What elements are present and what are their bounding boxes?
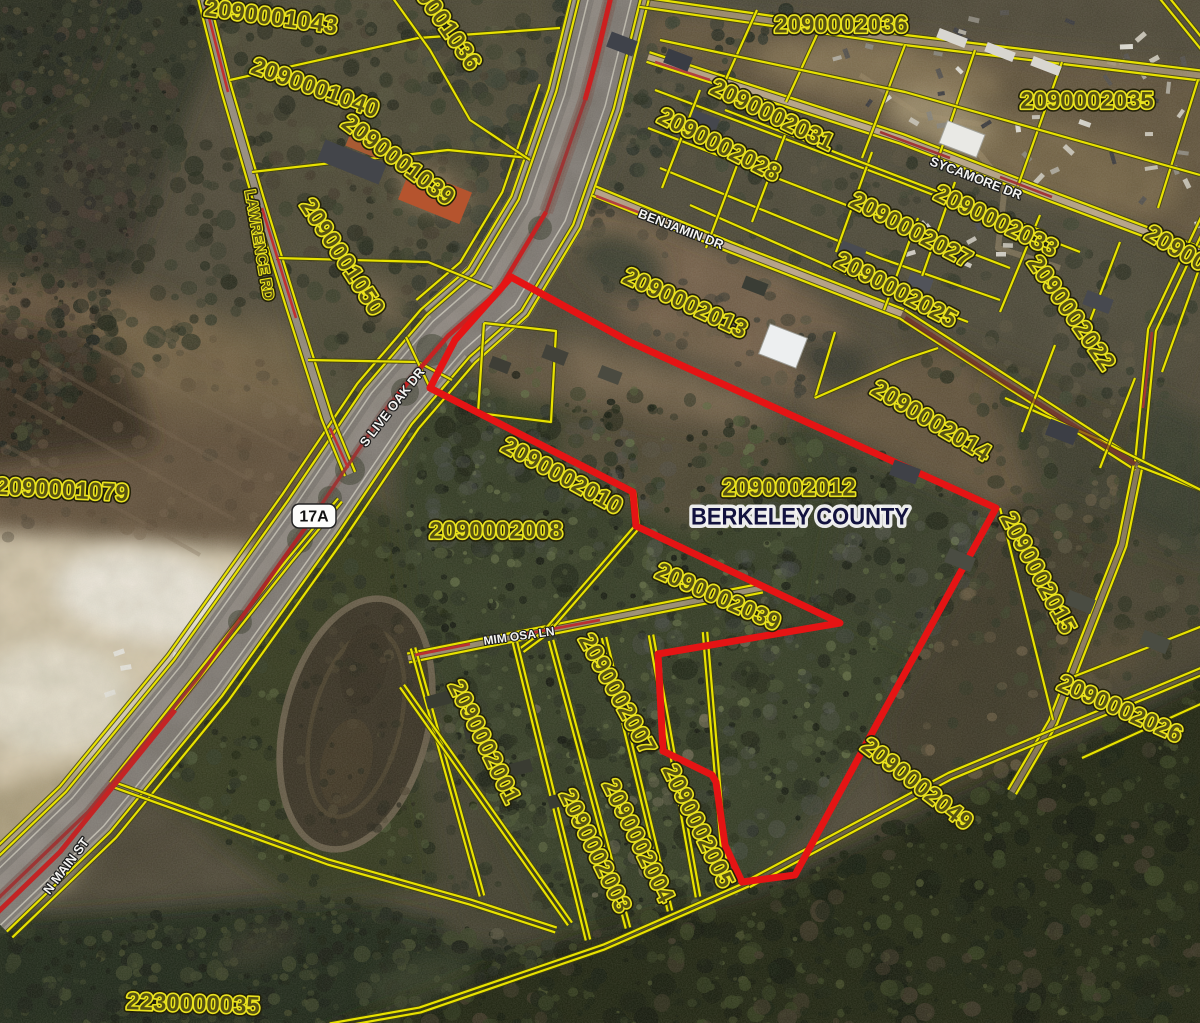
svg-text:2090002035: 2090002035 [1020,88,1153,115]
svg-text:17A: 17A [299,509,329,526]
svg-text:2230000035: 2230000035 [126,988,260,1020]
svg-text:2090002012: 2090002012 [722,475,855,502]
svg-text:BERKELEY COUNTY: BERKELEY COUNTY [691,504,909,531]
svg-text:2090002036: 2090002036 [774,12,907,39]
svg-text:2090002008: 2090002008 [429,518,562,545]
